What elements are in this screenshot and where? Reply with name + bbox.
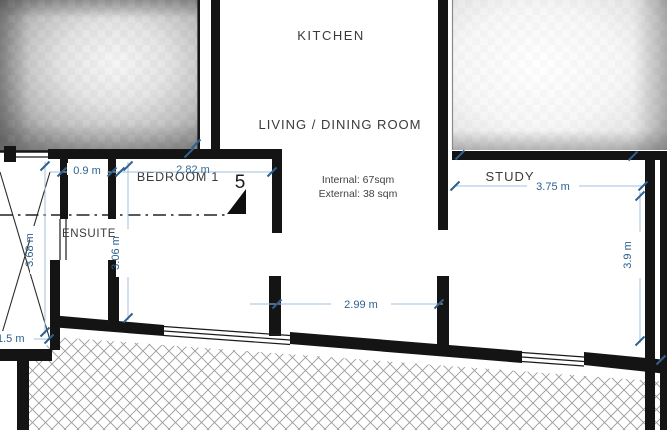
dimension-label: 1.5 m	[0, 333, 25, 345]
wall	[0, 349, 52, 361]
wall	[438, 0, 448, 230]
area-note-internal: Internal: 67sqm	[322, 174, 395, 186]
unit-number: 5	[235, 172, 246, 193]
wall	[17, 361, 29, 430]
dimension-study-height: 3.9 m	[622, 192, 645, 346]
ground-hatch	[29, 337, 667, 430]
window	[522, 353, 584, 358]
wall	[60, 157, 68, 219]
reference-ticks	[185, 140, 666, 365]
dimension-label: 3.9 m	[622, 241, 634, 269]
room-label-living-dining: LIVING / DINING ROOM	[258, 117, 421, 132]
floor-plan-canvas: KITCHEN LIVING / DINING ROOM BEDROOM 1 E…	[0, 0, 667, 430]
dimension-study-width: 3.75 m	[451, 180, 648, 193]
wall	[645, 160, 655, 430]
dimension-label: 3.06 m	[110, 236, 122, 270]
dimension-label: 3.68 m	[24, 233, 36, 267]
blurred-photo-right	[453, 0, 667, 150]
window	[522, 362, 584, 367]
room-label-ensuite: ENSUITE	[62, 228, 116, 240]
wall	[108, 157, 116, 219]
dimension-label: 3.75 m	[536, 181, 570, 193]
wall	[437, 276, 449, 350]
window	[164, 336, 290, 345]
floor-plan-drawing: KITCHEN LIVING / DINING ROOM BEDROOM 1 E…	[0, 0, 667, 430]
area-note: Internal: 67sqm External: 38 sqm	[319, 174, 398, 200]
dimension-label: 0.9 m	[73, 165, 101, 177]
window	[522, 357, 584, 362]
wall-sloped	[50, 315, 164, 336]
area-note-external: External: 38 sqm	[319, 188, 398, 200]
wall	[660, 160, 667, 430]
dimension-label: 2.99 m	[344, 299, 378, 311]
dimension-label: 2.82 m	[176, 164, 210, 176]
wall	[4, 146, 16, 162]
blurred-photo-left	[0, 0, 199, 152]
room-label-kitchen: KITCHEN	[297, 28, 365, 43]
wall	[211, 0, 220, 155]
wall	[48, 149, 282, 159]
wall	[272, 155, 282, 233]
